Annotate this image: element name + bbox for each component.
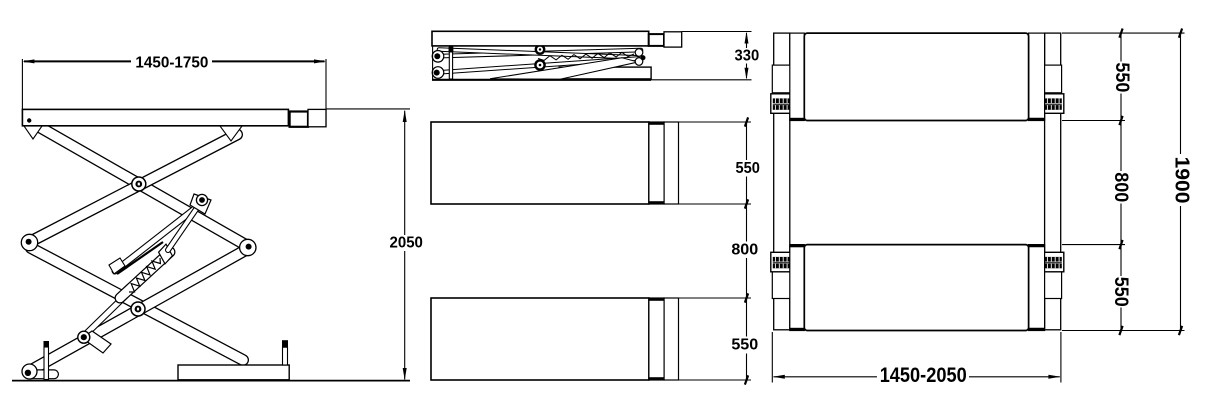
svg-text:2050: 2050 (390, 234, 423, 251)
svg-text:1900: 1900 (1171, 157, 1194, 204)
svg-text:550: 550 (736, 160, 760, 177)
svg-text:800: 800 (731, 241, 758, 258)
svg-text:800: 800 (1110, 172, 1131, 202)
svg-text:1450-1750: 1450-1750 (135, 54, 208, 71)
svg-text:550: 550 (731, 336, 758, 353)
svg-text:550: 550 (1111, 62, 1132, 92)
svg-text:330: 330 (735, 47, 760, 64)
svg-text:550: 550 (1110, 277, 1131, 307)
svg-text:1450-2050: 1450-2050 (880, 364, 967, 387)
